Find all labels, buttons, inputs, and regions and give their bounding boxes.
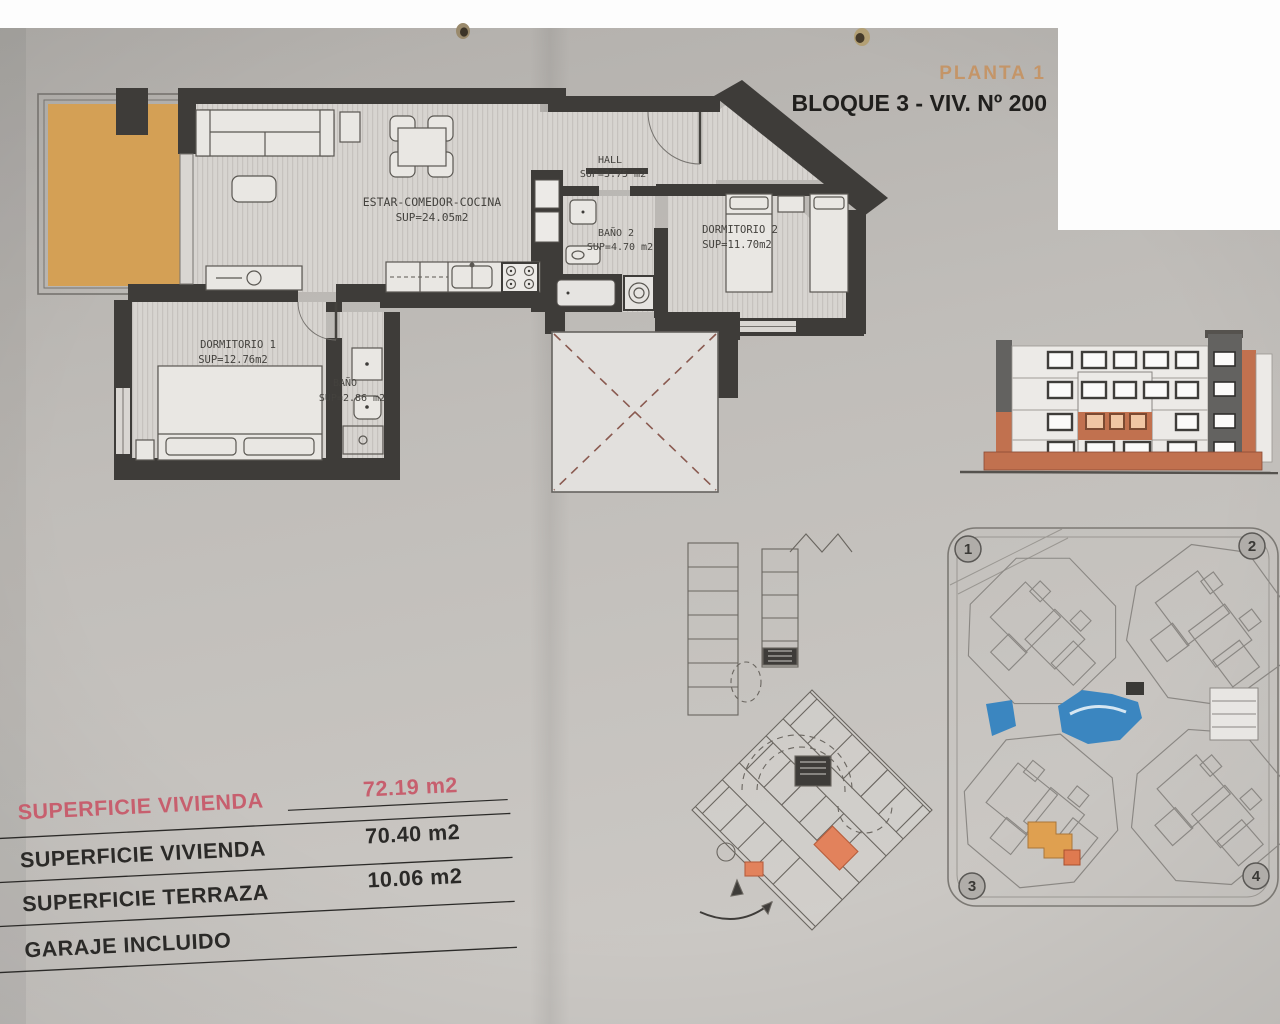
room-area-bath1: SUP=2.86 m2 (319, 393, 385, 404)
floor-plan-photo: PLANTA 1 BLOQUE 3 - VIV. Nº 200 (0, 0, 1280, 1024)
washing-machine (624, 276, 654, 310)
site-marker-3: 3 (968, 878, 976, 895)
site-marker-2: 2 (1248, 538, 1256, 555)
unit-title: BLOQUE 3 - VIV. Nº 200 (791, 90, 1047, 116)
kitchen-counter (386, 262, 540, 292)
patio-lightwell (552, 332, 718, 492)
room-label-living: ESTAR-COMEDOR-COCINA (363, 195, 502, 209)
room-label-bedroom2: DORMITORIO 2 (702, 224, 778, 236)
room-label-bath1: BAÑO (333, 376, 357, 389)
floor-title: PLANTA 1 (939, 63, 1046, 84)
sofa (196, 110, 334, 156)
site-marker-4: 4 (1252, 868, 1261, 885)
side-table (340, 112, 360, 142)
room-area-living: SUP=24.05m2 (396, 211, 469, 224)
pin-hole-right (854, 28, 870, 46)
summary-value-2: 70.40 m2 (365, 820, 461, 849)
sport-court (1210, 688, 1258, 740)
site-marker-1: 1 (964, 541, 972, 558)
bedroom1-furniture (136, 366, 322, 460)
highlighted-storage (745, 862, 763, 876)
room-label-bedroom1: DORMITORIO 1 (200, 339, 276, 351)
summary-value-3: 10.06 m2 (367, 864, 463, 893)
room-area-hall: SUP=3.75 m2 (580, 169, 646, 180)
ground-line (960, 472, 1278, 473)
room-area-bedroom1: SUP=12.76m2 (198, 354, 268, 366)
terrace (38, 88, 188, 294)
room-label-hall: HALL (598, 155, 622, 166)
plan-sheet: PLANTA 1 BLOQUE 3 - VIV. Nº 200 (0, 0, 1280, 1024)
tv-unit (206, 266, 302, 290)
room-label-bath2: BAÑO 2 (598, 226, 634, 239)
coffee-table (232, 176, 276, 202)
stove (502, 263, 538, 292)
pool-building (1126, 682, 1144, 695)
room-area-bath2: SUP=4.70 m2 (587, 242, 653, 253)
room-area-bedroom2: SUP=11.70m2 (702, 239, 772, 251)
pin-hole-left (456, 23, 470, 39)
building-elevation (960, 330, 1278, 473)
summary-value-1: 72.19 m2 (362, 773, 458, 802)
